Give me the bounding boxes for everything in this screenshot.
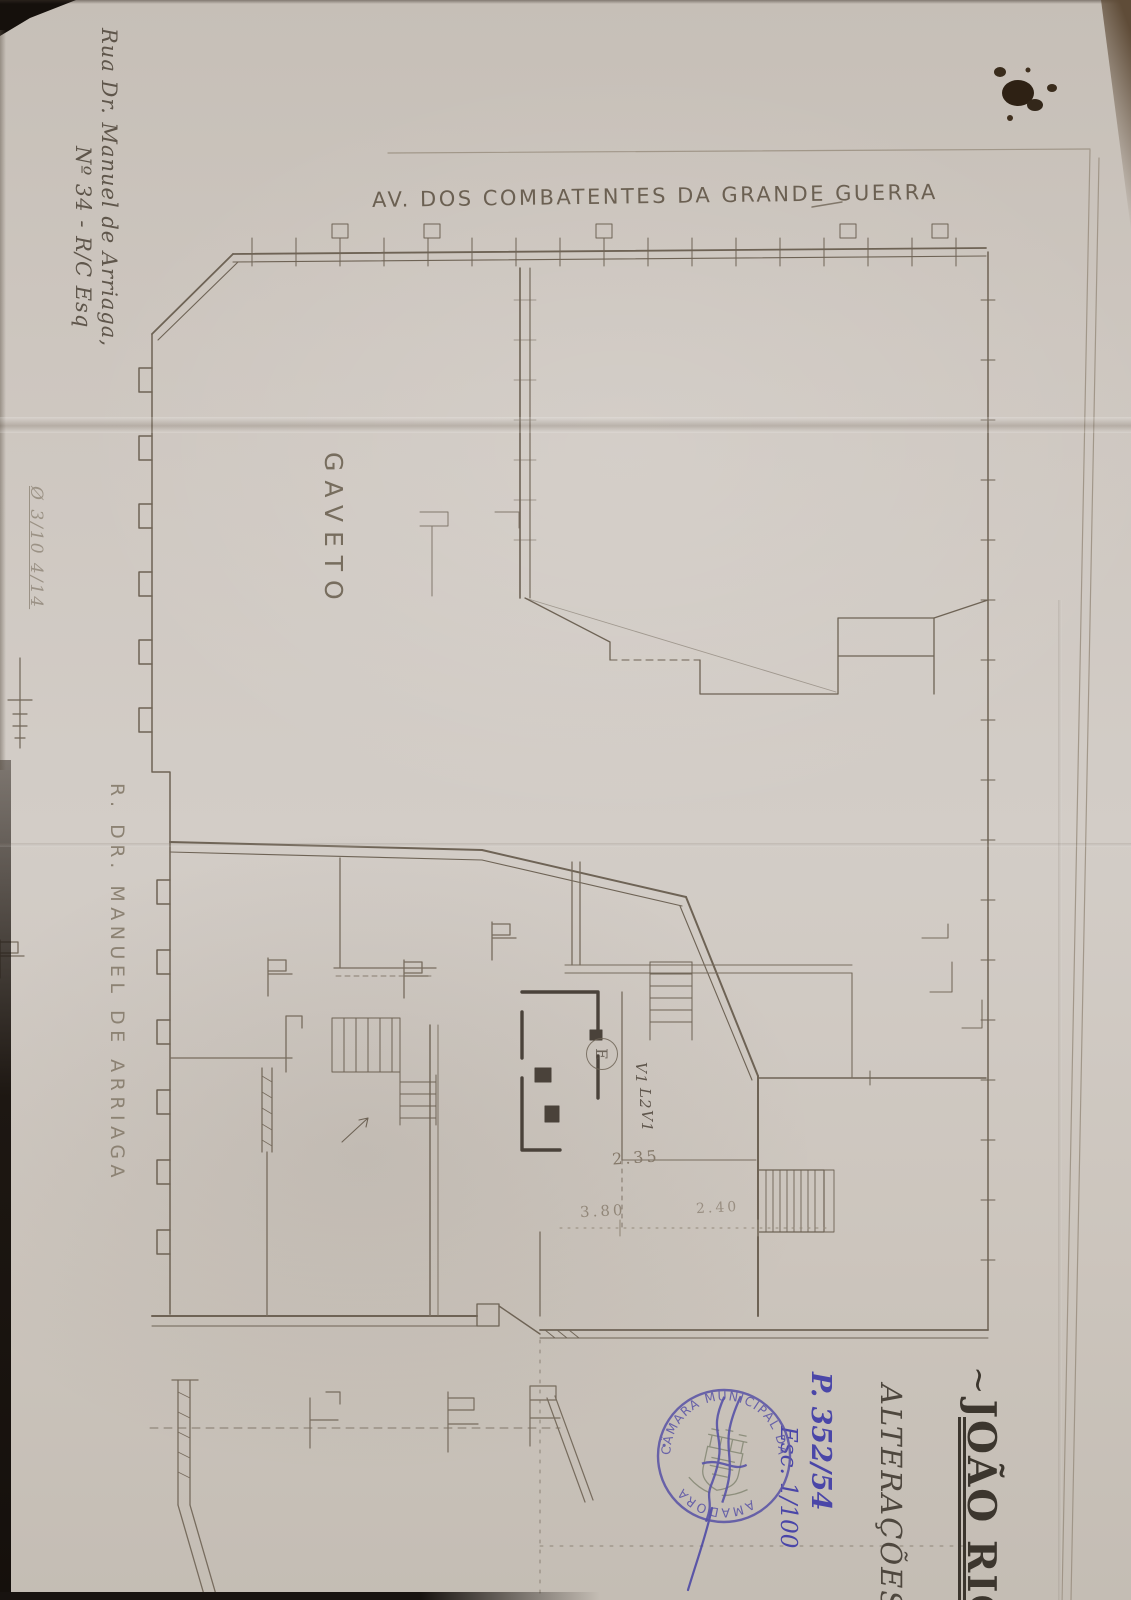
address-note: Rua Dr. Manuel de Arriaga, Nº 34 - R/C E… (70, 28, 122, 347)
process-number: P. 352/54 (804, 1372, 836, 1548)
municipal-stamp: CÂMARA MUNICIPAL DA AMADORA • (648, 1372, 800, 1546)
middle-perimeter (152, 842, 988, 1338)
coat-of-arms (687, 1424, 759, 1500)
stamp-graphic: CÂMARA MUNICIPAL DA AMADORA • (648, 1372, 800, 1542)
street-left-label: R. DR. MANUEL DE ARRIAGA (106, 783, 128, 1183)
title-prefix: ~ (959, 1366, 999, 1395)
margin-cross-mark (8, 658, 32, 748)
left-wall (139, 254, 238, 1314)
shaft-label: L2 (636, 1088, 654, 1110)
subtitle-label: ALTERAÇÕES , (874, 1384, 908, 1600)
stair-main (332, 1018, 436, 1142)
stair-hatched (758, 1170, 834, 1232)
title-block: ~ JOÃO RIC (958, 1366, 1004, 1600)
compartment-label: E (586, 1038, 618, 1070)
dimension-2-40: 2.40 (696, 1199, 740, 1217)
plan-linework (0, 0, 1131, 1600)
dimension-lines (560, 1220, 830, 1236)
facade-top (233, 202, 986, 266)
stair-small (650, 962, 692, 1040)
dimension-2-35: 2.35 (611, 1146, 660, 1168)
margin-note: Ø 3/10 4/14 (26, 486, 46, 609)
right-wall (981, 252, 995, 1330)
vent-label-top: V1 (632, 1062, 650, 1084)
basement-fragment (150, 1340, 985, 1600)
entry-hall (522, 992, 602, 1150)
compartment-letter: E (593, 1048, 612, 1060)
address-line2: Nº 34 - R/C Esq (70, 28, 96, 347)
interior-walls (0, 858, 982, 1316)
address-line1: Rua Dr. Manuel de Arriaga, (96, 28, 122, 347)
vent-label-bottom: V1 (638, 1110, 656, 1132)
scanned-floor-plan: AV. DOS COMBATENTES DA GRANDE GUERRA GAV… (0, 0, 1131, 1600)
corner-label: GAVETO (319, 452, 348, 609)
title-name: JOÃO RIC (958, 1400, 1004, 1600)
top-room (420, 268, 988, 694)
dimension-3-80: 3.80 (580, 1201, 626, 1221)
